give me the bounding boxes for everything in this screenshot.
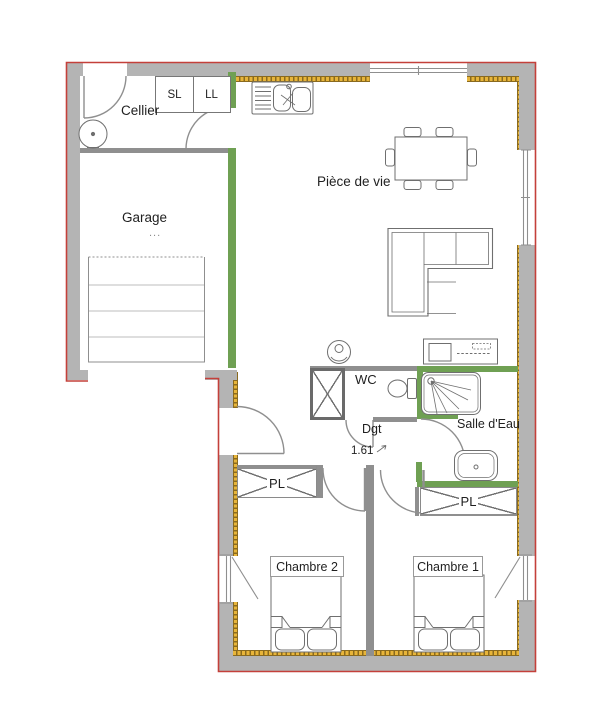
water-heater [79,120,107,148]
plan-drawing-layer [0,0,612,720]
cellier-entry-door [84,76,126,118]
garage-dots: ... [149,228,161,239]
bay-window [521,150,531,245]
room-label-chambre2: Chambre 2 [276,560,338,574]
kitchen-window [370,66,467,75]
dgt-dimension: 1.61 [351,446,373,458]
sofa [388,229,493,317]
chambre1-window [495,555,532,601]
main-entry-door [237,407,284,454]
dryer-label: SL [167,89,181,101]
room-label-salle-deau: Salle d'Eau [457,418,520,431]
dryer-box: SL [155,76,194,113]
technical-duct-box [310,368,345,420]
closet-left: PL [237,465,317,498]
room-label-box-chambre2: Chambre 2 [270,556,344,577]
chambre2-window [220,555,258,603]
room-label-wc: WC [355,373,377,386]
kitchen-sink [252,82,313,114]
chambre2-door [323,468,365,511]
room-label-piece-de-vie: Pièce de vie [317,175,391,189]
windows [220,66,532,603]
dimension-arrow [377,446,386,453]
room-label-garage: Garage [122,211,167,225]
garage-door-panel [89,257,205,362]
bed-chambre1 [414,575,484,652]
room-label-cellier: Cellier [121,104,159,118]
room-label-box-chambre1: Chambre 1 [413,556,483,577]
washer-label: LL [205,89,218,101]
bed-chambre2 [271,575,341,652]
cellier-living-door [186,107,228,149]
room-label-dgt: Dgt [362,423,381,436]
round-fixture [328,341,351,364]
tv-unit [424,339,498,364]
dining-table [386,128,477,190]
floor-plan: PL PL SL LL Cellier Garage ... Pièce de … [0,0,612,720]
toilet [388,379,417,399]
room-label-chambre1: Chambre 1 [417,560,479,574]
closet-right-label: PL [459,494,479,509]
washbasin [455,451,498,481]
washer-box: LL [193,76,231,113]
closet-right: PL [420,487,517,516]
shower [422,373,481,415]
chambre1-door [381,470,424,513]
closet-left-label: PL [267,476,287,491]
